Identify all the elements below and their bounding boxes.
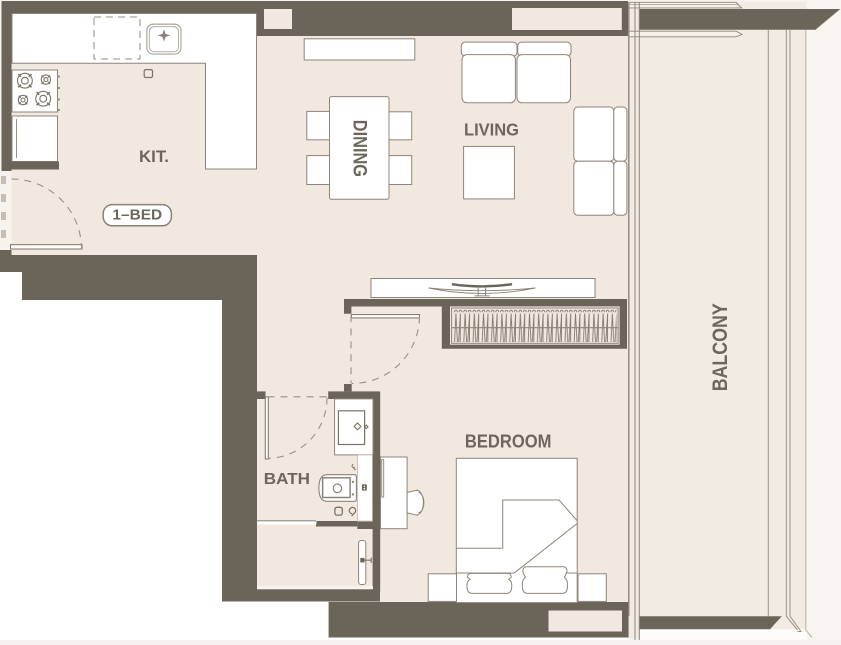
svg-text:KIT.: KIT.	[139, 147, 169, 166]
svg-text:BALCONY: BALCONY	[709, 303, 732, 391]
svg-text:LIVING: LIVING	[464, 120, 519, 140]
svg-text:BATH: BATH	[264, 471, 310, 488]
svg-text:1–BED: 1–BED	[112, 207, 162, 223]
svg-text:BEDROOM: BEDROOM	[465, 431, 552, 451]
svg-text:DINING: DINING	[349, 120, 370, 177]
